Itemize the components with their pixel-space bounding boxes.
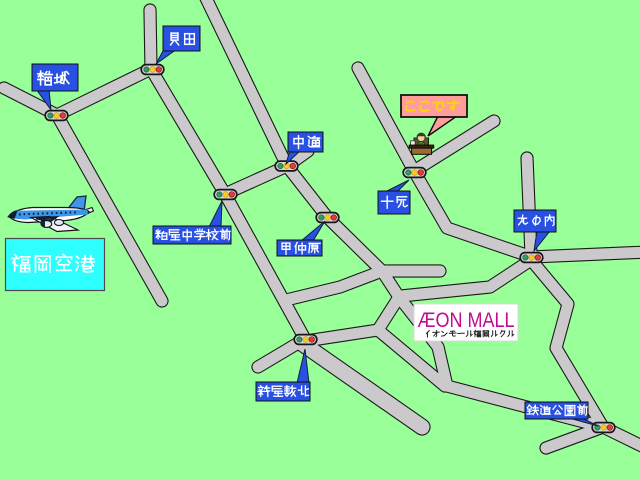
svg-text:ÆON MALL: ÆON MALL bbox=[418, 309, 515, 332]
